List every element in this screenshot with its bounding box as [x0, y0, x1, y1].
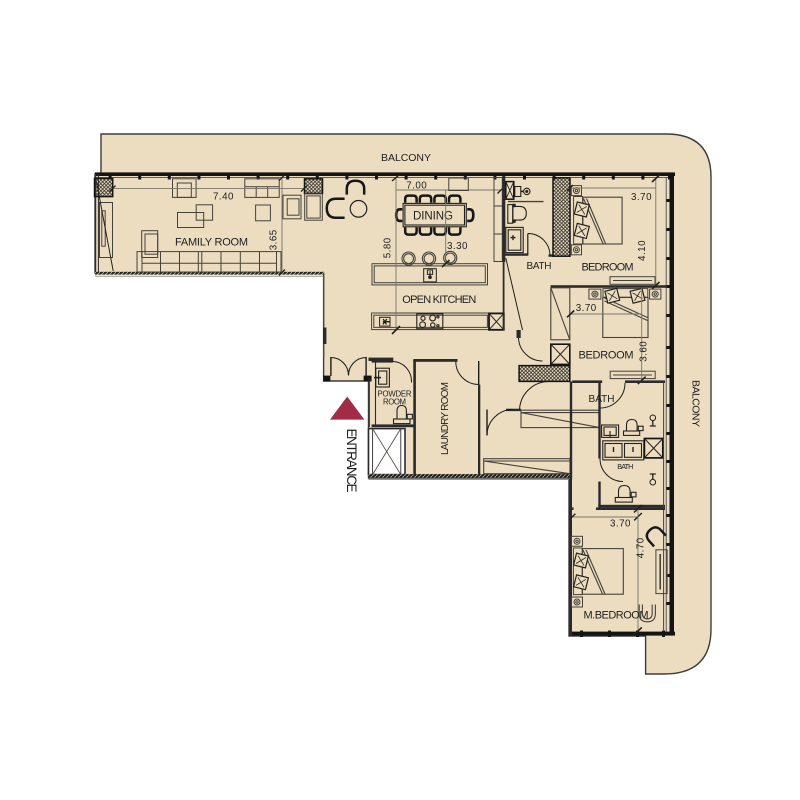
svg-text:3.70: 3.70: [610, 518, 631, 529]
svg-text:7.40: 7.40: [213, 192, 234, 203]
svg-text:OPEN KITCHEN: OPEN KITCHEN: [402, 294, 476, 306]
svg-text:BALCONY: BALCONY: [690, 380, 702, 427]
svg-text:5.80: 5.80: [383, 237, 394, 258]
svg-text:3.70: 3.70: [631, 192, 652, 203]
svg-text:3.70: 3.70: [576, 303, 597, 314]
svg-text:3.60: 3.60: [639, 341, 650, 362]
svg-text:BALCONY: BALCONY: [381, 152, 431, 164]
svg-text:BATH: BATH: [589, 394, 615, 405]
svg-text:FAMILY ROOM: FAMILY ROOM: [175, 237, 248, 249]
svg-text:4.10: 4.10: [637, 240, 648, 261]
svg-text:LAUNDRY ROOM: LAUNDRY ROOM: [440, 382, 451, 455]
svg-text:ENTRANCE: ENTRANCE: [344, 429, 359, 493]
svg-text:BATH: BATH: [617, 462, 633, 471]
svg-text:4.70: 4.70: [635, 537, 646, 558]
svg-text:3.30: 3.30: [447, 241, 468, 252]
svg-text:DINING: DINING: [413, 210, 453, 222]
svg-text:7.00: 7.00: [406, 180, 427, 191]
svg-text:3.65: 3.65: [269, 229, 280, 250]
svg-text:BEDROOM: BEDROOM: [579, 350, 634, 362]
svg-text:BATH: BATH: [527, 261, 552, 272]
svg-text:ROOM: ROOM: [383, 397, 406, 406]
svg-text:BEDROOM: BEDROOM: [582, 261, 634, 273]
